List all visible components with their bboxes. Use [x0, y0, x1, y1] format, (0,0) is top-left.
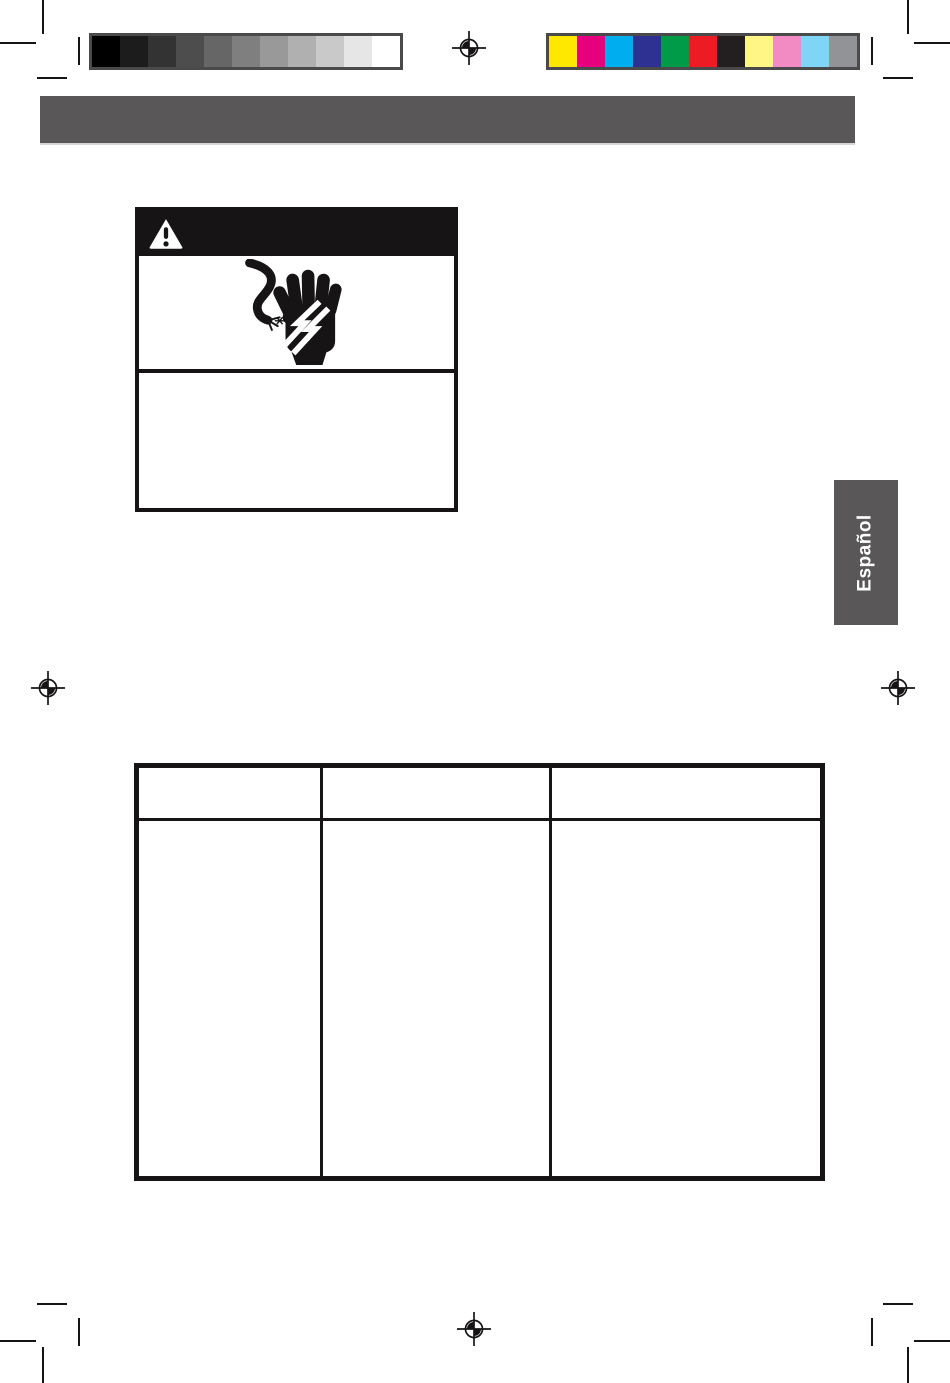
calibration-swatch	[344, 36, 372, 67]
table-body-cell	[323, 821, 549, 1176]
page-header-bar	[40, 96, 855, 143]
calibration-swatch	[372, 36, 400, 67]
calibration-swatch	[176, 36, 204, 67]
calibration-swatch	[829, 36, 857, 67]
calibration-swatch	[745, 36, 773, 67]
warning-triangle-icon	[148, 217, 184, 250]
grayscale-calibration-bar	[89, 33, 403, 70]
crop-mark	[42, 1347, 44, 1383]
calibration-swatch	[633, 36, 661, 67]
table-header-cell	[139, 768, 320, 818]
warning-panel	[135, 207, 458, 512]
crop-mark	[871, 37, 873, 65]
table-body-cell	[552, 821, 820, 1176]
calibration-swatch	[260, 36, 288, 67]
calibration-swatch	[717, 36, 745, 67]
crop-mark	[883, 77, 913, 79]
crop-mark	[37, 77, 67, 79]
crop-mark	[42, 0, 44, 34]
table-header-cell	[552, 768, 820, 818]
crop-mark	[78, 1318, 80, 1346]
table-body-cell	[139, 821, 320, 1176]
crop-mark	[883, 1303, 913, 1305]
calibration-swatch	[773, 36, 801, 67]
registration-crosshair-icon	[451, 30, 487, 66]
page-canvas: Español	[0, 0, 950, 1383]
crop-mark	[0, 1340, 36, 1342]
calibration-swatch	[549, 36, 577, 67]
table-header-cell	[323, 768, 549, 818]
crop-mark	[914, 1340, 950, 1342]
calibration-swatch	[120, 36, 148, 67]
crop-mark	[78, 37, 80, 65]
calibration-swatch	[204, 36, 232, 67]
registration-crosshair-icon	[880, 670, 916, 706]
calibration-swatch	[661, 36, 689, 67]
troubleshooting-table	[134, 763, 825, 1181]
calibration-swatch	[288, 36, 316, 67]
warning-hazard-art-section	[139, 256, 454, 373]
color-calibration-bar	[546, 33, 860, 70]
registration-crosshair-icon	[456, 1311, 492, 1347]
registration-crosshair-icon	[30, 670, 66, 706]
calibration-swatch	[689, 36, 717, 67]
language-tab-label: Español	[855, 514, 877, 591]
warning-header-band	[139, 211, 454, 256]
calibration-swatch	[801, 36, 829, 67]
calibration-swatch	[92, 36, 120, 67]
warning-message-area	[139, 373, 454, 508]
crop-mark	[871, 1318, 873, 1346]
crop-mark	[0, 42, 36, 44]
crop-mark	[907, 1347, 909, 1383]
language-tab-espanol: Español	[834, 480, 898, 625]
crop-mark	[907, 0, 909, 34]
calibration-swatch	[577, 36, 605, 67]
crop-mark	[37, 1303, 67, 1305]
calibration-swatch	[316, 36, 344, 67]
electric-shock-hand-icon	[227, 259, 345, 366]
calibration-swatch	[232, 36, 260, 67]
crop-mark	[914, 42, 950, 44]
calibration-swatch	[605, 36, 633, 67]
calibration-swatch	[148, 36, 176, 67]
